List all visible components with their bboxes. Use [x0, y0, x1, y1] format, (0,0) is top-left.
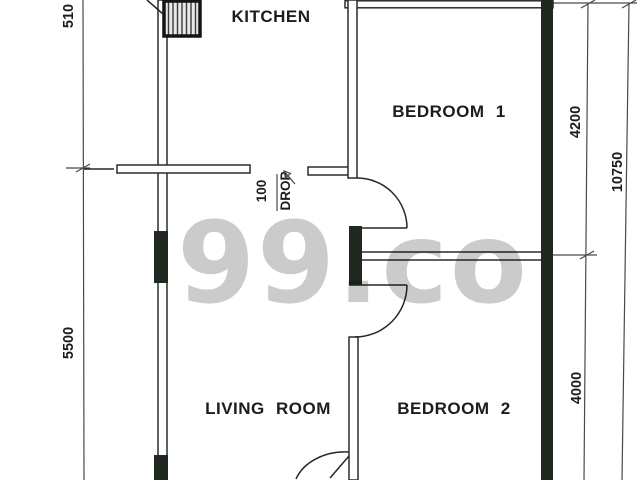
- room-label-bedroom1: BEDROOM 1: [392, 102, 505, 121]
- dimension-label-5500: 5500: [61, 327, 77, 359]
- solid-wall-left-lower: [154, 455, 168, 480]
- dimension-label-10750: 10750: [610, 152, 626, 192]
- room-label-kitchen: KITCHEN: [231, 7, 310, 26]
- wall-bedroom1-left: [348, 0, 357, 178]
- floor-plan-drawing: 100 DROP KITCHEN BEDROOM 1 LIVING ROOM B…: [0, 0, 640, 480]
- watermark-99co: 99.co: [177, 199, 529, 329]
- room-label-living-room: LIVING ROOM: [205, 399, 331, 418]
- wall-hall-top-left: [117, 165, 250, 173]
- solid-wall-right: [541, 0, 553, 480]
- dimension-label-4200: 4200: [568, 106, 584, 138]
- room-label-bedroom2: BEDROOM 2: [397, 399, 510, 418]
- wall-bedroom1-top: [345, 1, 553, 8]
- dimension-label-510: 510: [61, 4, 77, 28]
- dimension-label-4000: 4000: [569, 372, 585, 404]
- floor-plan: 100 DROP KITCHEN BEDROOM 1 LIVING ROOM B…: [0, 0, 640, 480]
- wall-bedroom2-left: [349, 337, 358, 480]
- kitchen-fixture-hatched: [164, 1, 200, 36]
- solid-wall-left-upper: [154, 231, 168, 283]
